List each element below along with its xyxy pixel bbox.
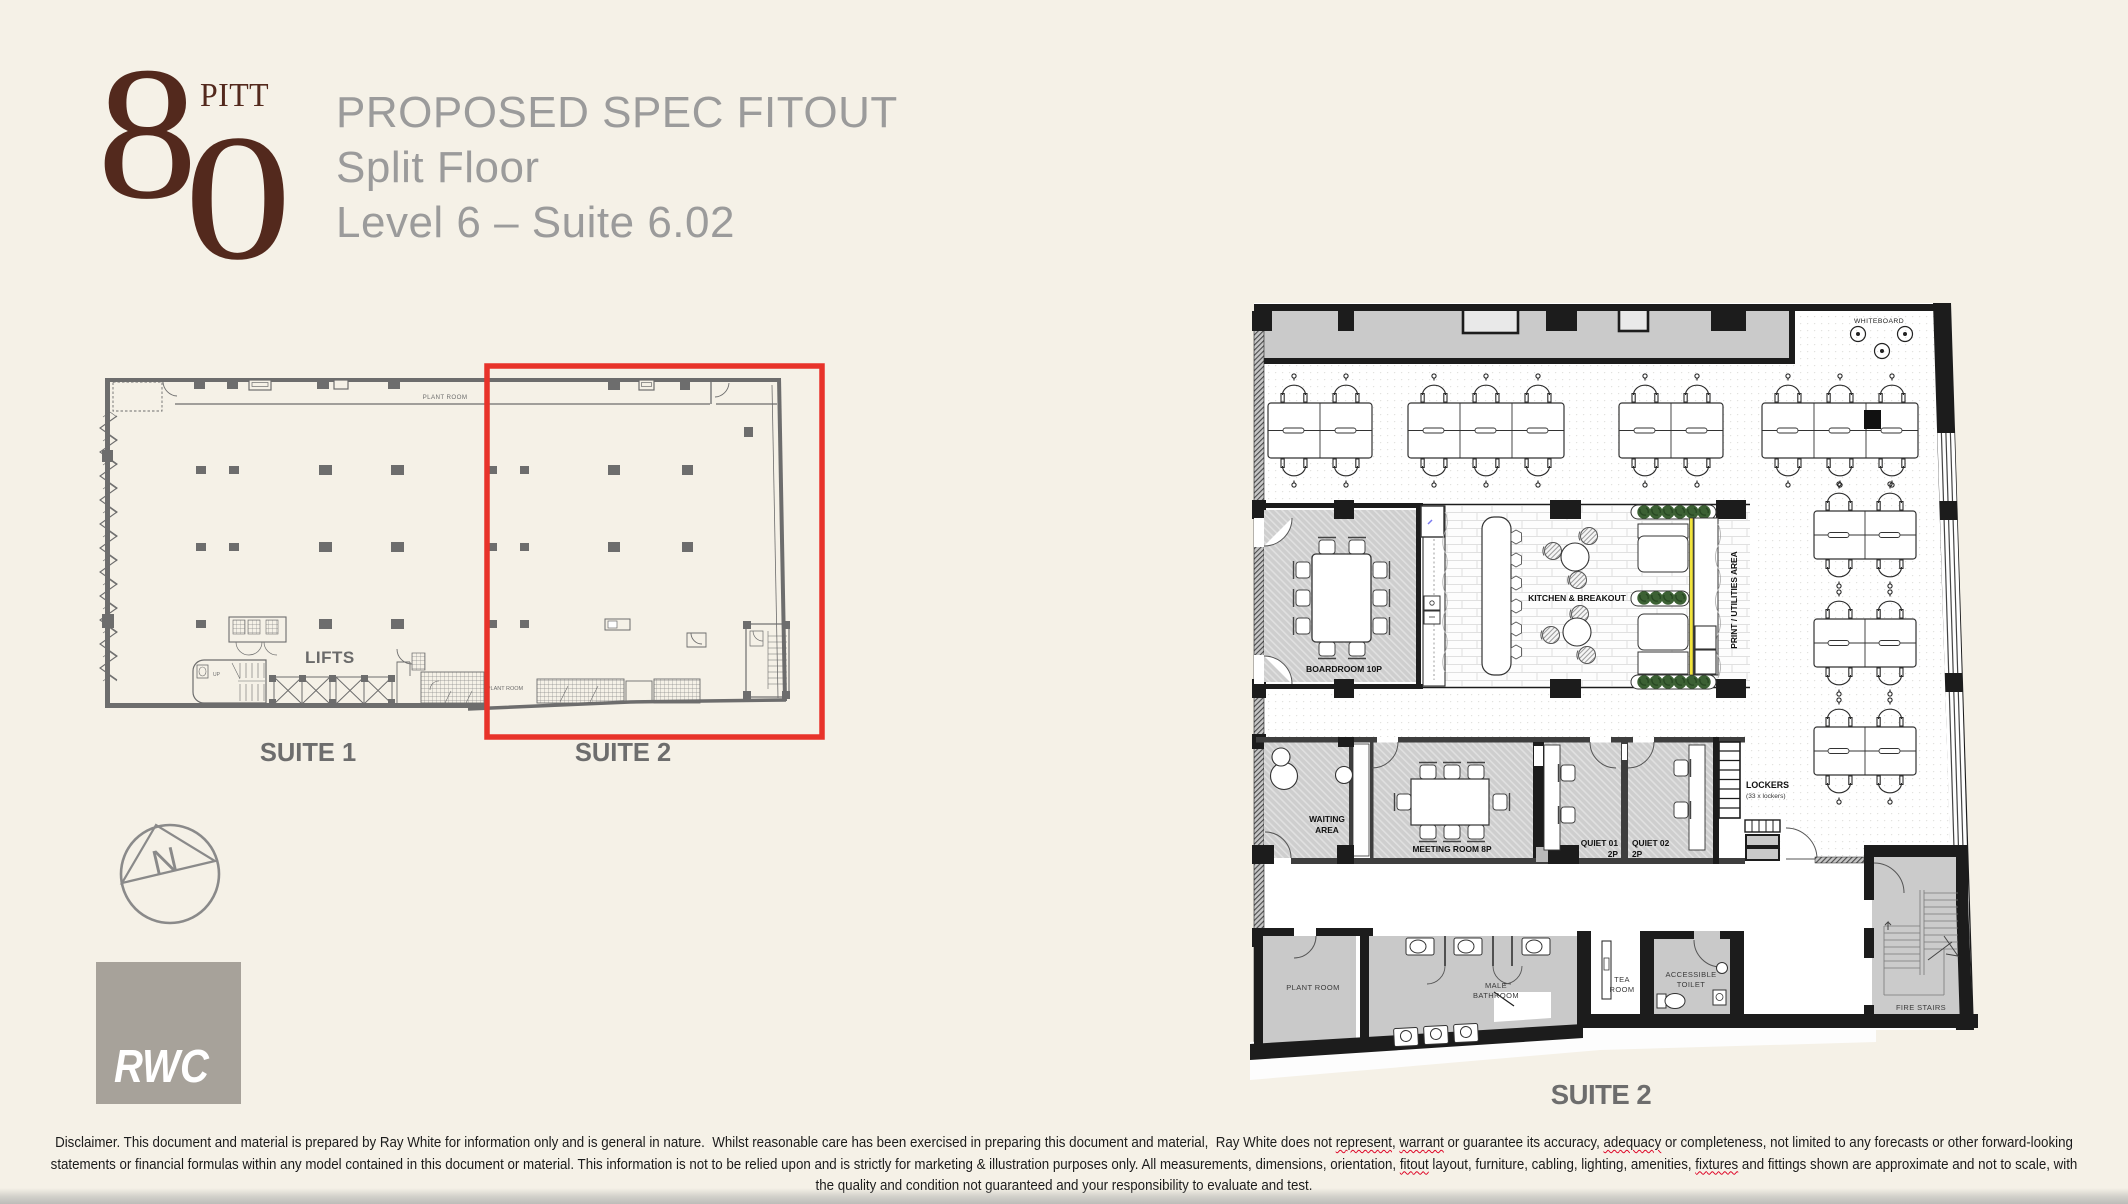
svg-text:QUIET 02: QUIET 02 [1632, 838, 1670, 848]
svg-text:LIFTS: LIFTS [305, 648, 355, 667]
svg-text:BATHROOM: BATHROOM [1473, 991, 1519, 1000]
svg-text:ACCESSIBLE: ACCESSIBLE [1665, 970, 1716, 979]
svg-text:2P: 2P [1632, 849, 1643, 859]
svg-text:PLANT ROOM: PLANT ROOM [1286, 983, 1339, 992]
svg-text:QUIET 01: QUIET 01 [1581, 838, 1619, 848]
svg-text:FIRE STAIRS: FIRE STAIRS [1896, 1003, 1946, 1012]
svg-text:N: N [148, 840, 181, 884]
svg-text:LOCKERS: LOCKERS [1746, 780, 1789, 790]
svg-text:PLANT ROOM: PLANT ROOM [487, 686, 524, 692]
svg-text:UP: UP [213, 672, 221, 678]
svg-text:PRINT / UTILITIES AREA: PRINT / UTILITIES AREA [1729, 551, 1739, 648]
svg-text:AREA: AREA [1315, 825, 1339, 835]
svg-text:WHITEBOARD: WHITEBOARD [1854, 318, 1904, 325]
svg-text:KITCHEN & BREAKOUT: KITCHEN & BREAKOUT [1528, 593, 1627, 603]
svg-text:PLANT ROOM: PLANT ROOM [423, 394, 468, 401]
svg-text:MEETING ROOM 8P: MEETING ROOM 8P [1412, 844, 1492, 854]
svg-text:TOILET: TOILET [1677, 980, 1706, 989]
svg-text:BOARDROOM 10P: BOARDROOM 10P [1306, 664, 1382, 674]
svg-text:2P: 2P [1608, 849, 1619, 859]
svg-text:MALE: MALE [1485, 981, 1507, 990]
svg-text:WAITING: WAITING [1309, 814, 1345, 824]
svg-text:TEA: TEA [1614, 975, 1630, 984]
svg-text:ROOM: ROOM [1610, 985, 1635, 994]
svg-text:(33 x lockers): (33 x lockers) [1746, 793, 1786, 800]
